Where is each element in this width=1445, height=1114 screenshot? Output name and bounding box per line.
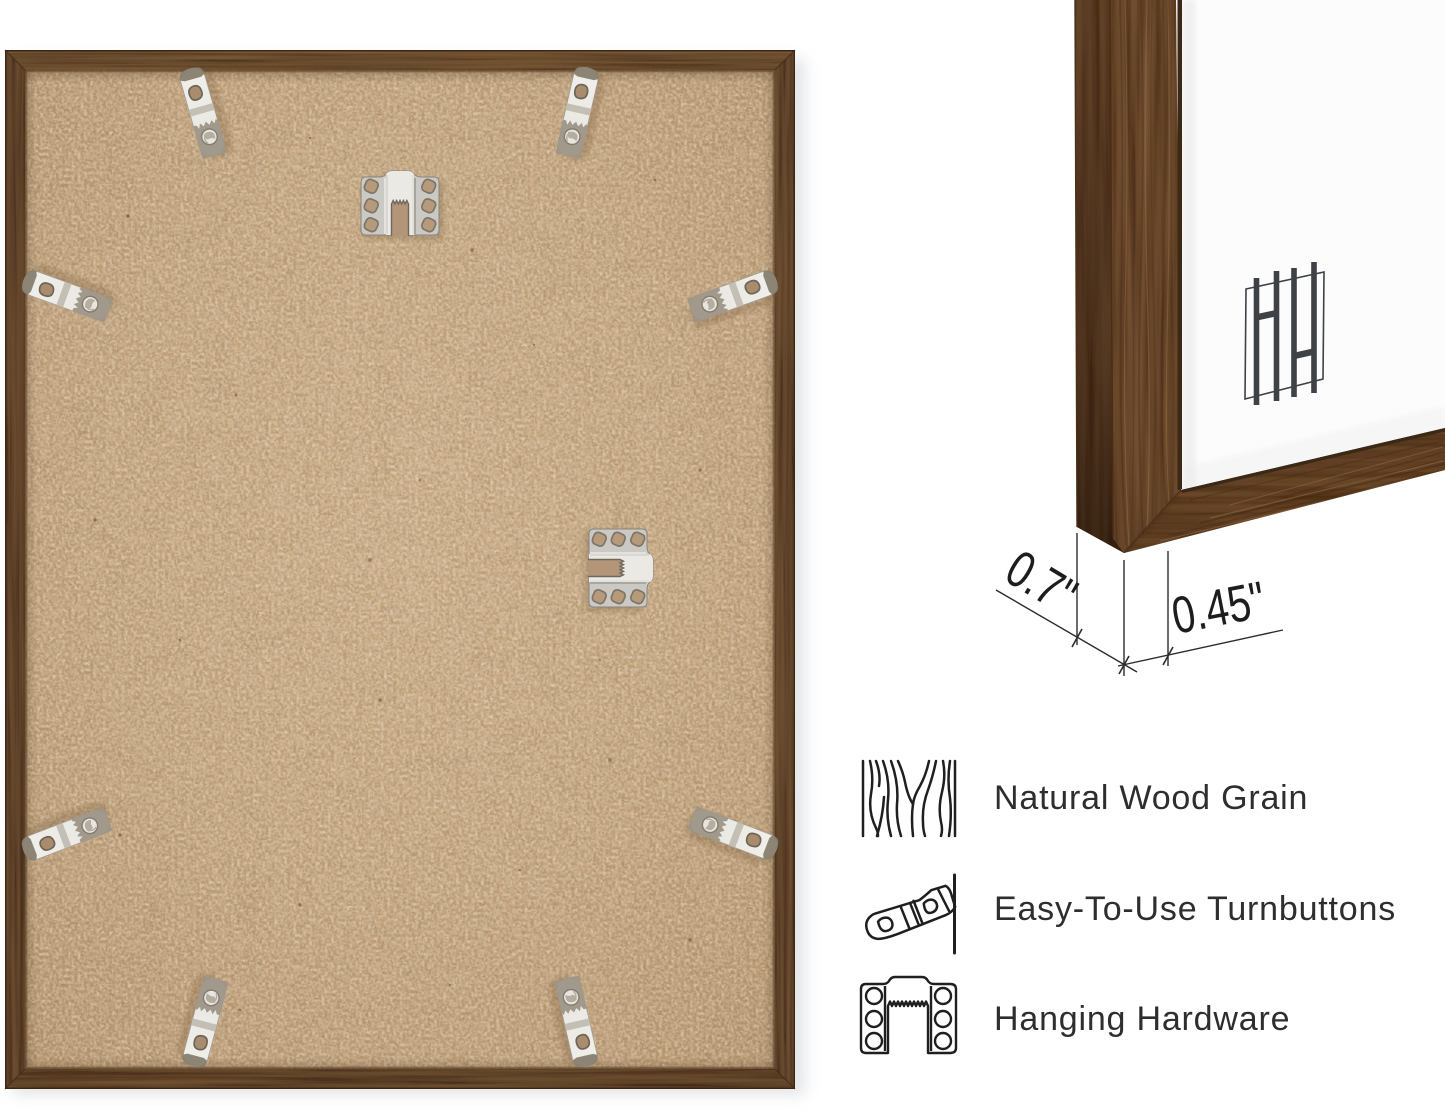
svg-text:Hanging Hardware: Hanging Hardware: [994, 1000, 1290, 1038]
svg-text:Natural Wood Grain: Natural Wood Grain: [994, 779, 1308, 817]
svg-text:0.45": 0.45": [1167, 570, 1270, 645]
svg-text:Easy-To-Use Turnbuttons: Easy-To-Use Turnbuttons: [994, 890, 1396, 928]
svg-text:0.7": 0.7": [996, 539, 1087, 625]
